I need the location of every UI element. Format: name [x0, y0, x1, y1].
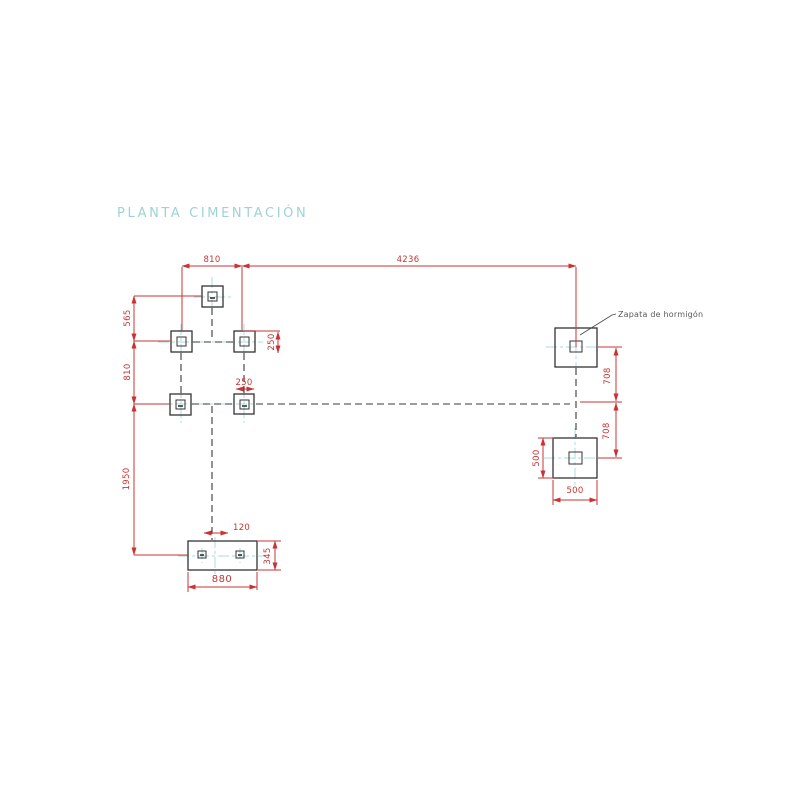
dim-left-565: 565: [123, 309, 133, 326]
drawing-title: PLANTA CIMENTACIÓN: [117, 205, 308, 221]
dim-zapata-500-vertical: 500: [532, 449, 542, 466]
dim-left-1950: 1950: [122, 468, 132, 491]
drawing-canvas: PLANTA CIMENTACIÓN: [0, 0, 800, 800]
zapata-callout-label: Zapata de hormigón: [618, 309, 703, 319]
dim-right-708-upper: 708: [603, 367, 613, 384]
dim-top-4236: 4236: [397, 255, 420, 265]
centerlines: [156, 277, 608, 576]
dim-zapata-500-horizontal: 500: [566, 486, 583, 496]
dim-top-810: 810: [203, 255, 220, 265]
dim-base-880: 880: [212, 574, 233, 585]
callout-leader-line: [580, 314, 616, 335]
dim-base-345: 345: [263, 547, 273, 564]
dim-pillar-width-250: 250: [235, 378, 252, 388]
dim-left-810: 810: [123, 363, 133, 380]
dim-pillar-offset-250: 250: [267, 333, 277, 350]
dim-base-120: 120: [233, 523, 250, 533]
zapata-callout: Zapata de hormigón: [580, 309, 703, 335]
foundation-plan-drawing: PLANTA CIMENTACIÓN: [0, 0, 800, 800]
dim-right-708-lower: 708: [602, 422, 612, 439]
